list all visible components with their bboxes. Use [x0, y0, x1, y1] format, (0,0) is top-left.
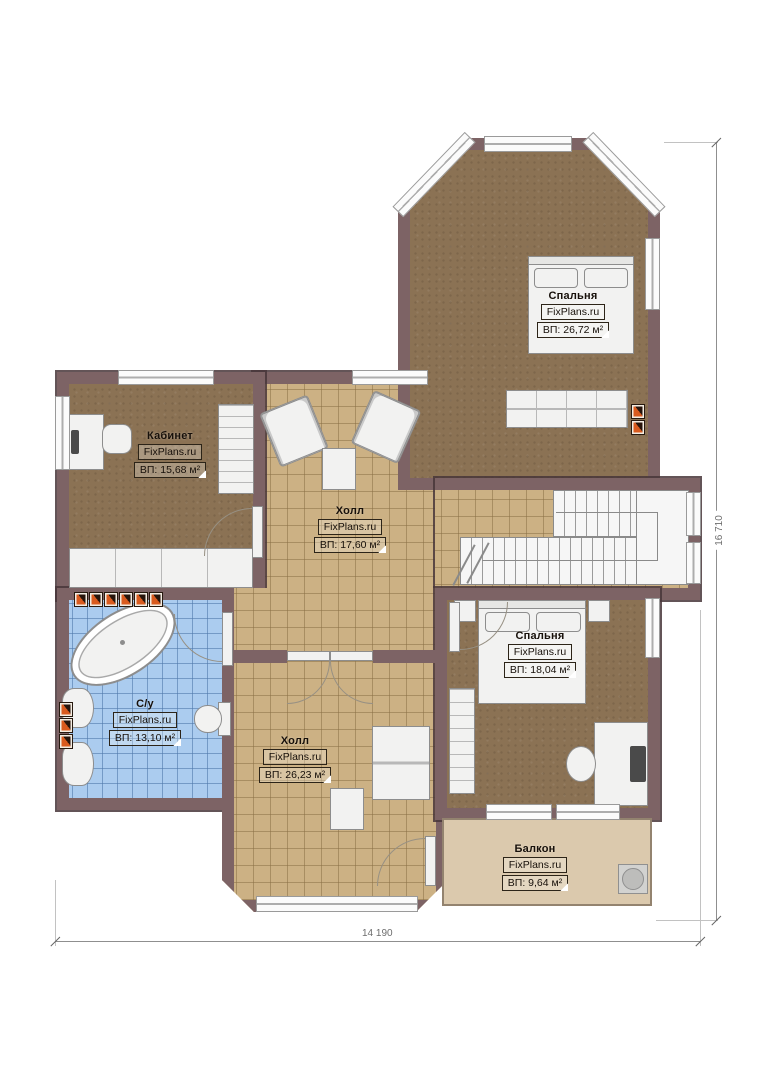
wardrobe: [449, 688, 475, 794]
door-leaf: [287, 651, 330, 661]
cabinet: [372, 726, 430, 800]
extension-line: [700, 610, 701, 946]
interior-wall: [234, 650, 287, 663]
room-name: Балкон: [515, 843, 556, 855]
window: [256, 896, 418, 912]
watermark: FixPlans.ru: [138, 444, 203, 460]
room-area: ВП: 9,64 м²: [502, 875, 568, 891]
watermark: FixPlans.ru: [503, 857, 568, 873]
window: [645, 598, 660, 658]
window: [352, 370, 428, 385]
pillow: [534, 268, 578, 288]
radiator: [74, 592, 163, 607]
door-arc: [204, 508, 252, 556]
nightstand: [588, 600, 610, 622]
watermark: FixPlans.ru: [541, 304, 606, 320]
room-name: Спальня: [516, 630, 565, 642]
room-label-bathroom: С/у FixPlans.ru ВП: 13,10 м²: [85, 698, 205, 746]
door-leaf: [330, 651, 373, 661]
room-area: ВП: 26,23 м²: [259, 767, 331, 783]
stair-landing: [636, 490, 689, 585]
computer-icon: [630, 746, 646, 782]
window: [484, 136, 572, 152]
window: [556, 804, 620, 820]
room-label-office: Кабинет FixPlans.ru ВП: 15,68 м²: [110, 430, 230, 478]
computer-icon: [71, 430, 79, 454]
drain-icon: [622, 868, 644, 890]
room-label-hall-lower: Холл FixPlans.ru ВП: 26,23 м²: [235, 735, 355, 783]
extension-line: [656, 920, 718, 921]
stair-route-line: [556, 512, 658, 513]
room-label-hall-upper: Холл FixPlans.ru ВП: 17,60 м²: [290, 505, 410, 553]
window: [118, 370, 214, 385]
interior-wall: [373, 650, 436, 663]
room-name: Спальня: [549, 290, 598, 302]
radiator: [59, 702, 73, 749]
room-area: ВП: 26,72 м²: [537, 322, 609, 338]
room-label-balcony: Балкон FixPlans.ru ВП: 9,64 м²: [475, 843, 595, 891]
room-name: С/у: [136, 698, 154, 710]
pillow: [536, 612, 581, 632]
door-arc: [330, 661, 373, 704]
watermark: FixPlans.ru: [318, 519, 383, 535]
room-area: ВП: 18,04 м²: [504, 662, 576, 678]
extension-line: [55, 880, 56, 946]
door-arc: [174, 614, 222, 662]
door-leaf: [222, 612, 233, 666]
room-area: ВП: 17,60 м²: [314, 537, 386, 553]
dimension-height: 16 710: [714, 511, 725, 550]
room-name: Кабинет: [147, 430, 193, 442]
room-label-bedroom-top: Спальня FixPlans.ru ВП: 26,72 м²: [513, 290, 633, 338]
pillow: [584, 268, 628, 288]
bed-headboard: [528, 256, 634, 265]
door-leaf: [449, 602, 460, 652]
window: [486, 804, 552, 820]
watermark: FixPlans.ru: [113, 712, 178, 728]
door-arc: [377, 838, 425, 886]
room-name: Холл: [281, 735, 309, 747]
room-area: ВП: 15,68 м²: [134, 462, 206, 478]
room-area: ВП: 13,10 м²: [109, 730, 181, 746]
bathtub-drain: [120, 640, 125, 645]
wardrobe: [506, 390, 628, 428]
radiator: [631, 404, 645, 435]
window: [55, 396, 70, 470]
dimension-width: 14 190: [358, 928, 397, 939]
watermark: FixPlans.ru: [263, 749, 328, 765]
window: [645, 238, 660, 310]
door-leaf: [425, 836, 436, 886]
stair-route-line: [657, 512, 658, 560]
room-name: Холл: [336, 505, 364, 517]
dimension-line-bottom: [55, 941, 700, 942]
office-chair: [566, 746, 596, 782]
room-label-bedroom-lower: Спальня FixPlans.ru ВП: 18,04 м²: [480, 630, 600, 678]
watermark: FixPlans.ru: [508, 644, 573, 660]
extension-line: [664, 142, 718, 143]
cabinet: [330, 788, 364, 830]
door-arc: [287, 661, 330, 704]
side-table: [322, 448, 356, 490]
window: [686, 542, 701, 584]
window: [686, 492, 701, 536]
floor-plan: Спальня FixPlans.ru ВП: 26,72 м² Кабинет…: [0, 0, 763, 1080]
stair-route-line: [482, 560, 658, 561]
door-leaf: [252, 506, 263, 558]
